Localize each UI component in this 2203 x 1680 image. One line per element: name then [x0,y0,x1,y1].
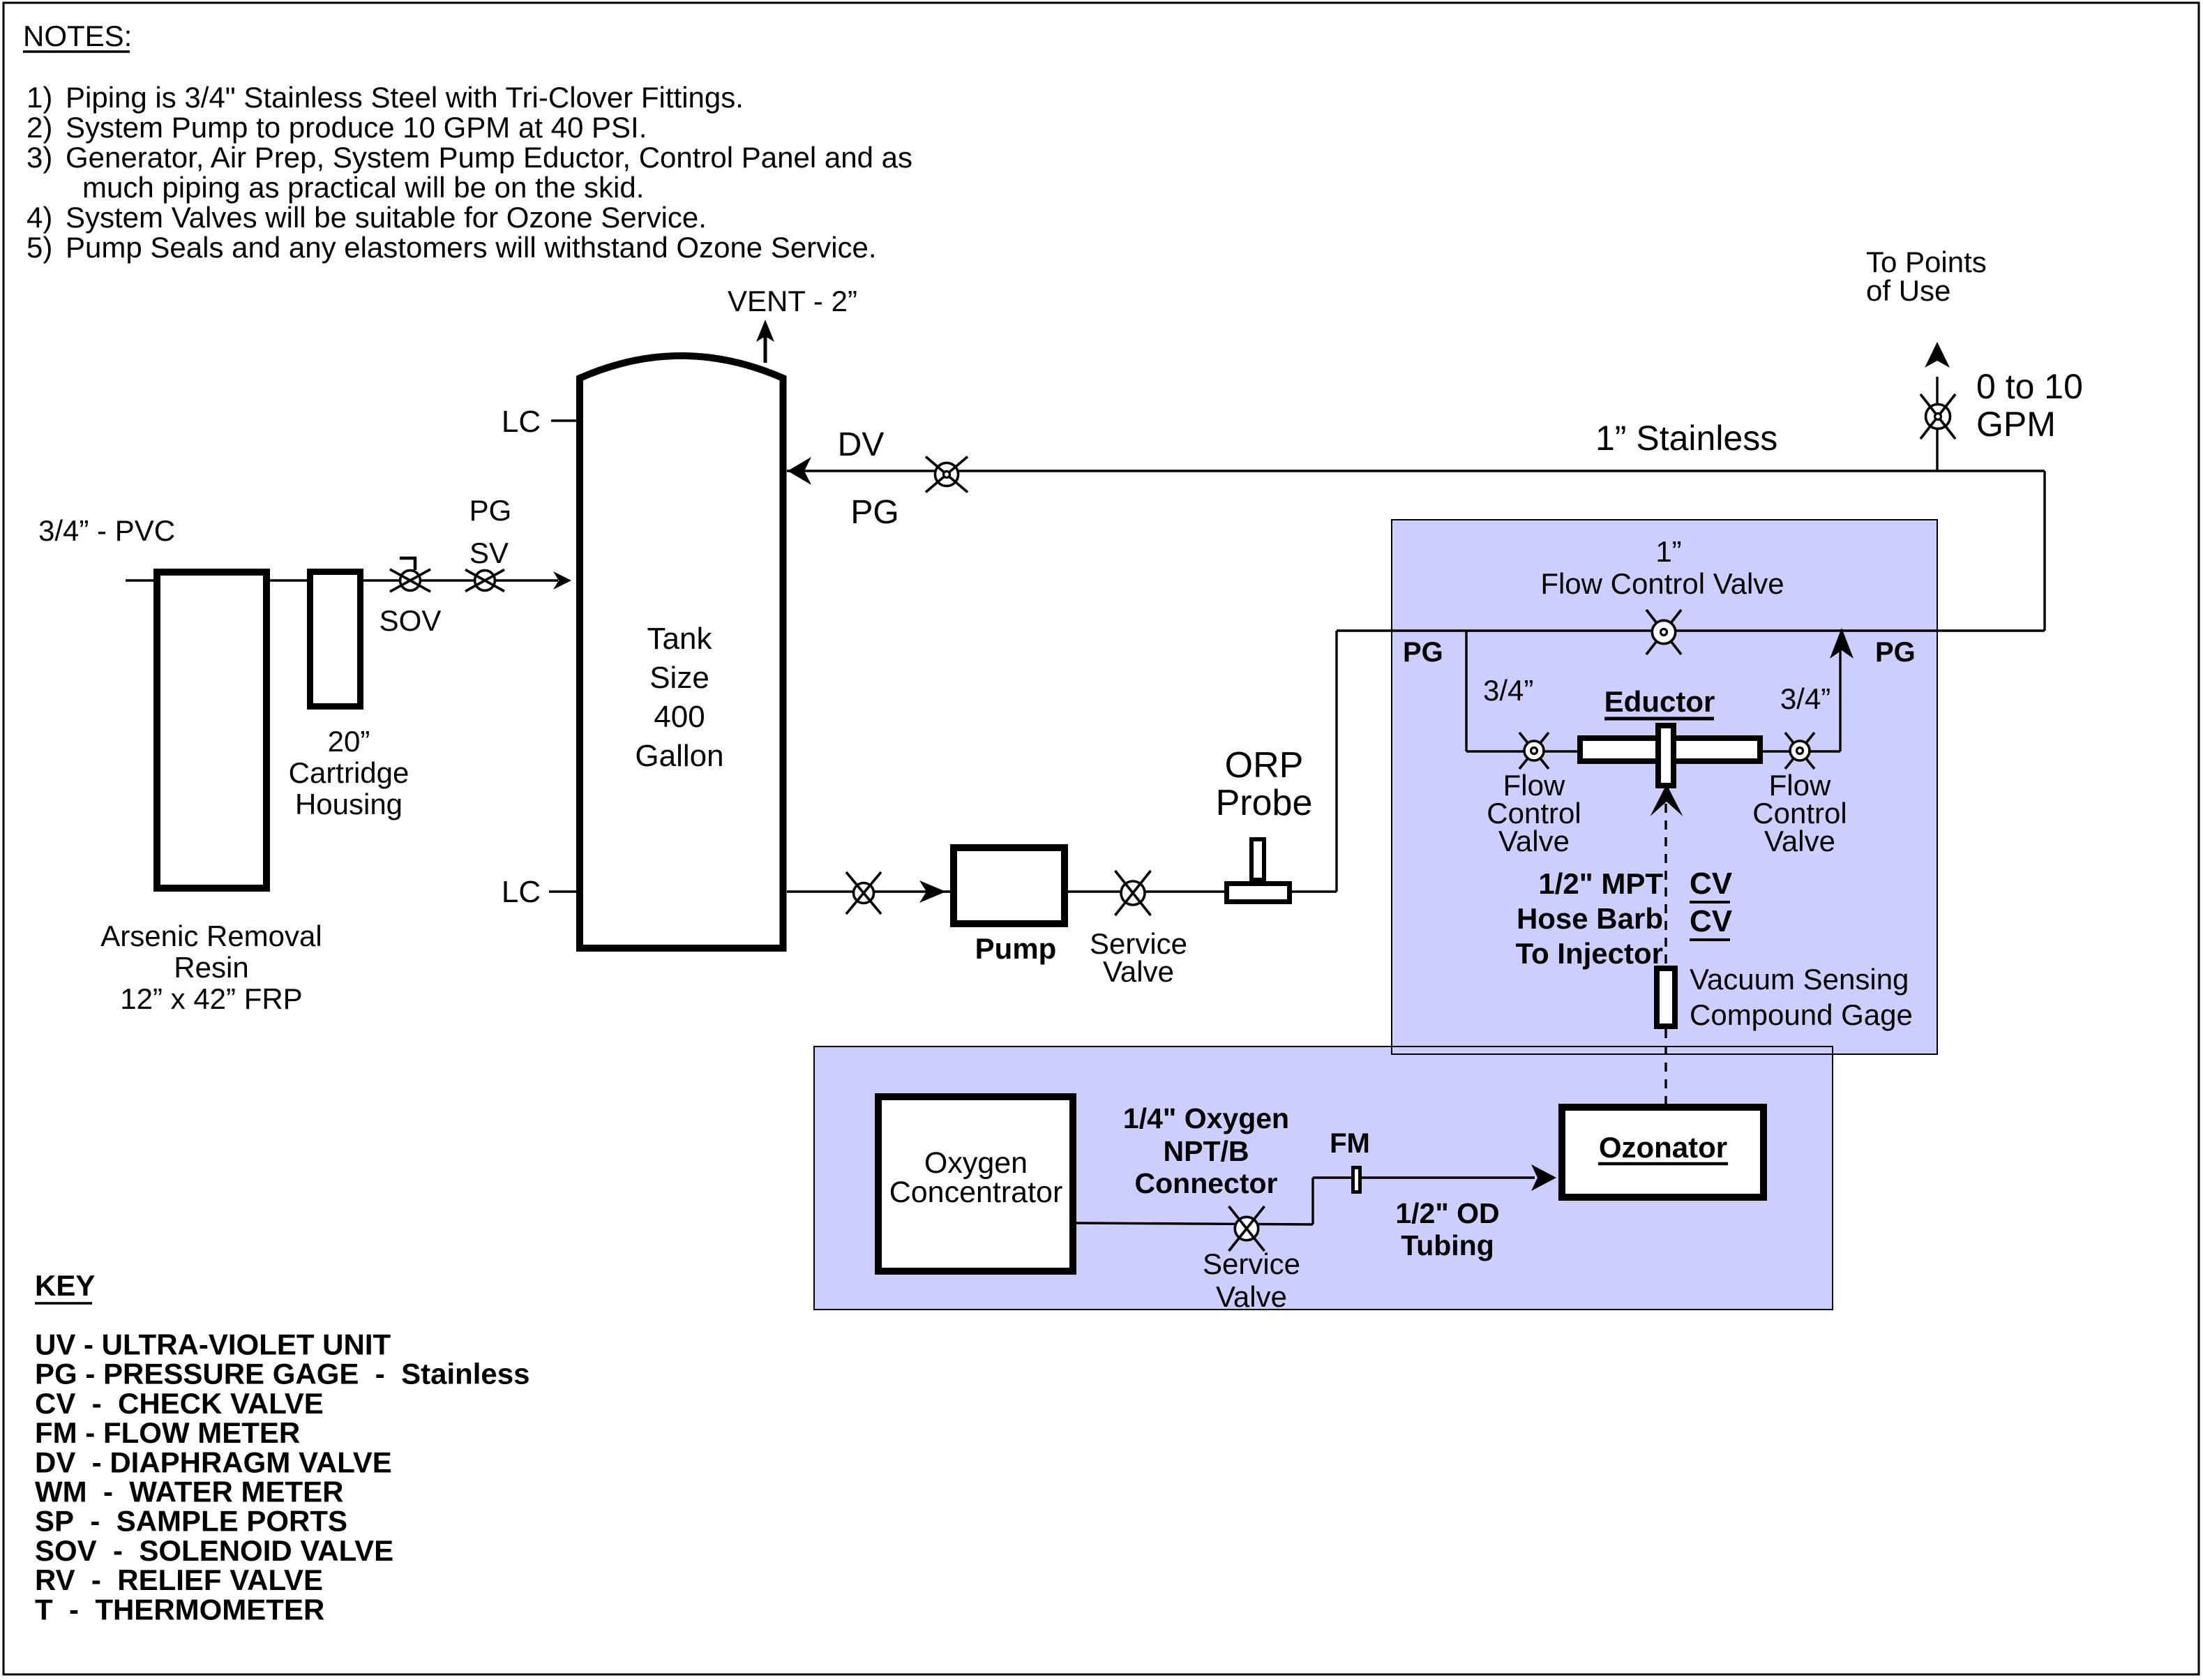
svg-text:DV: DV [838,426,885,463]
svg-text:NOTES:: NOTES: [23,20,132,52]
svg-text:PG: PG [1875,637,1916,668]
svg-text:1)Piping is 3/4" Stainless Ste: 1)Piping is 3/4" Stainless Steel with Tr… [27,81,744,114]
svg-text:LC: LC [502,405,541,439]
svg-text:2)System Pump to produce 10 GP: 2)System Pump to produce 10 GPM at 40 PS… [27,111,647,144]
svg-text:FM - FLOW METER: FM - FLOW METER [35,1416,300,1449]
svg-text:1”: 1” [1655,535,1681,568]
svg-text:1/2" ODTubing: 1/2" ODTubing [1395,1197,1499,1261]
svg-text:PG: PG [469,494,512,527]
svg-text:WM - WATER METER: WM - WATER METER [35,1476,344,1508]
svg-text:LC: LC [502,875,541,909]
svg-text:much piping as practical will: much piping as practical will be on the … [82,171,644,204]
svg-text:SP - SAMPLE PORTS: SP - SAMPLE PORTS [35,1505,347,1538]
svg-text:Ozonator: Ozonator [1599,1131,1727,1164]
svg-text:FM: FM [1330,1128,1370,1159]
svg-text:4)System Valves will be suitab: 4)System Valves will be suitable for Ozo… [27,201,707,234]
svg-text:3/4”: 3/4” [1780,682,1830,715]
svg-text:SOV - SOLENOID VALVE: SOV - SOLENOID VALVE [35,1534,393,1567]
svg-text:KEY: KEY [35,1269,95,1302]
svg-text:3/4” - PVC: 3/4” - PVC [38,514,175,547]
svg-text:VENT - 2”: VENT - 2” [728,285,857,317]
svg-text:CV: CV [1690,904,1733,938]
svg-text:T - THERMOMETER: T - THERMOMETER [35,1593,324,1626]
svg-text:1” Stainless: 1” Stainless [1595,419,1777,458]
svg-text:5)Pump Seals and any elastomer: 5)Pump Seals and any elastomers will wit… [27,231,877,264]
svg-text:ServiceValve: ServiceValve [1203,1247,1300,1313]
svg-text:CV: CV [1690,867,1733,901]
svg-text:ServiceValve: ServiceValve [1090,927,1187,988]
svg-text:PG - PRESSURE GAGE - Stainle: PG - PRESSURE GAGE - Stainless [35,1358,530,1390]
svg-text:ORPProbe: ORPProbe [1216,745,1313,823]
svg-text:RV - RELIEF VALVE: RV - RELIEF VALVE [35,1563,323,1596]
svg-text:Flow Control Valve: Flow Control Valve [1540,567,1784,600]
svg-text:3)Generator, Air Prep, System: 3)Generator, Air Prep, System Pump Educt… [27,141,912,174]
svg-text:DV - DIAPHRAGM VALVE: DV - DIAPHRAGM VALVE [35,1446,392,1478]
svg-text:Eductor: Eductor [1604,685,1715,718]
svg-text:PG: PG [850,494,899,531]
svg-text:SV: SV [469,537,509,569]
svg-text:Pump: Pump [975,932,1057,965]
svg-text:CV - CHECK VALVE: CV - CHECK VALVE [35,1387,324,1420]
svg-text:SOV: SOV [379,604,442,637]
svg-text:3/4”: 3/4” [1483,674,1533,707]
svg-text:UV - ULTRA-VIOLET UNIT: UV - ULTRA-VIOLET UNIT [35,1328,391,1361]
svg-text:PG: PG [1403,637,1443,668]
